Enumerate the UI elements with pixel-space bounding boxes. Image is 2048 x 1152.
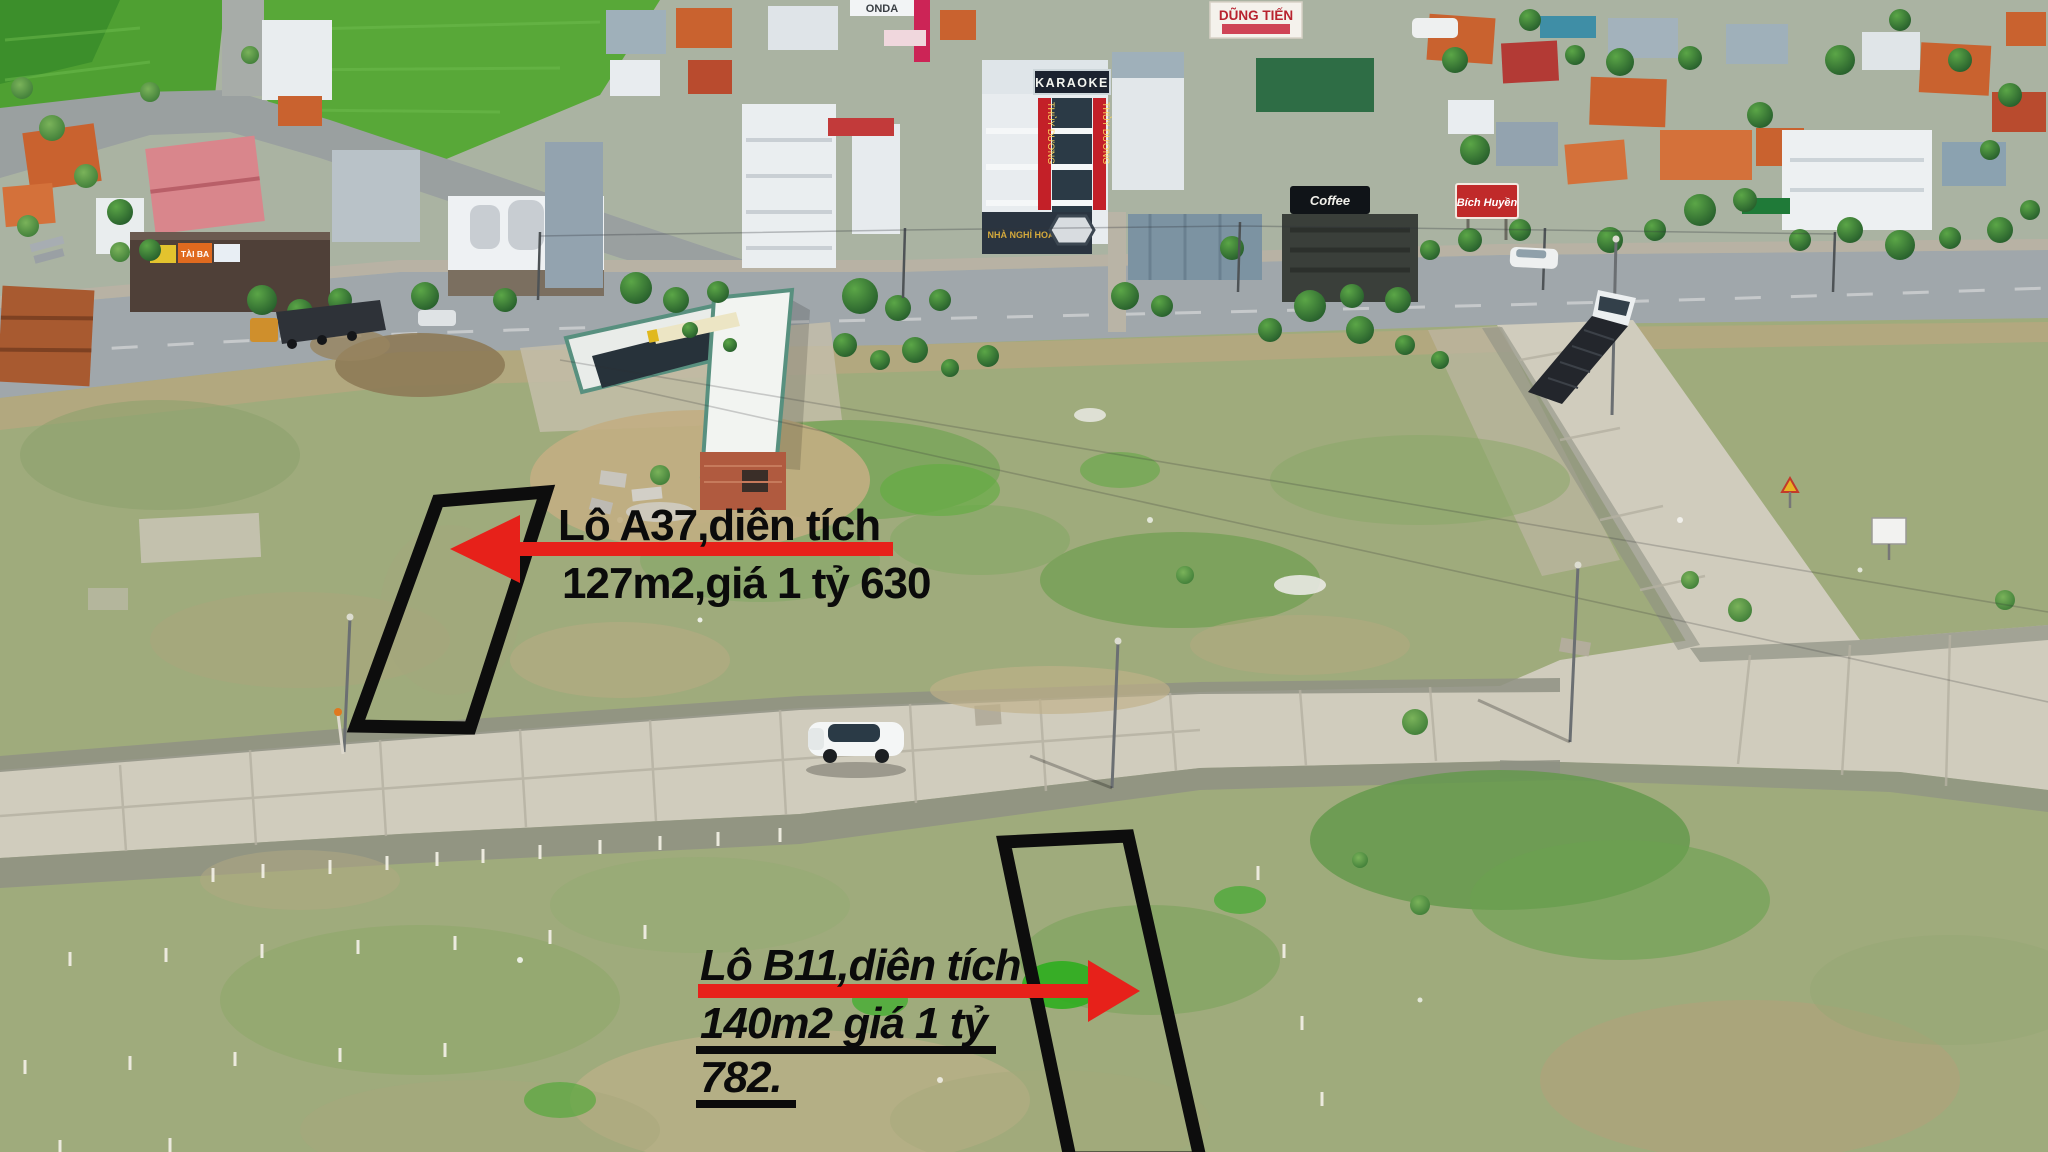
white-tall-building [852, 124, 900, 234]
roof [1660, 130, 1752, 180]
a37-label-line2: 127m2,giá 1 tỷ 630 [562, 559, 930, 608]
roof [606, 10, 666, 54]
orange-roof [278, 96, 322, 126]
thuy-duong-label-right: THỦY DƯƠNG [1101, 102, 1112, 164]
gray-tall-building [545, 142, 603, 288]
white-shop [262, 20, 332, 100]
alley [1108, 212, 1126, 332]
roof [610, 60, 660, 96]
white-notice-board [1872, 518, 1906, 544]
tai-ba-sign-label: TÀI BA [181, 249, 209, 259]
karaoke-building: KARAOKE THỦY DƯƠNG THỦY DƯƠNG NHÀ NGHỈ H… [982, 60, 1112, 254]
coral-roof-house [145, 136, 265, 235]
white-modern-building [1782, 130, 1932, 230]
roof [1862, 32, 1920, 70]
karaoke-sign-label: KARAOKE [1035, 76, 1109, 90]
karaoke-sign: KARAOKE [1034, 70, 1110, 94]
white-house-2 [1112, 78, 1184, 190]
bich-huyen-sign-label: Bích Huyền [1457, 197, 1518, 209]
brown-roof-house-left [0, 286, 94, 387]
gray-roof [1112, 52, 1184, 80]
dung-tien-sign: DŨNG TIẾN [1210, 2, 1302, 38]
north-road-stub [222, 0, 264, 96]
honda-sign-label: ONDA [866, 3, 898, 15]
b11-label-line2: 140m2 giá 1 tỷ [700, 999, 990, 1048]
white-suv [806, 722, 906, 778]
glass-column [1052, 98, 1092, 216]
teal-storefront [1540, 16, 1596, 38]
roof [2006, 12, 2046, 46]
white-midrise [742, 104, 836, 268]
roof [1589, 77, 1667, 128]
gray-roof-house [332, 150, 420, 242]
roof [676, 8, 732, 48]
tennis-court [1256, 58, 1374, 112]
scene: TÀI BA ONDA [0, 0, 2048, 1152]
honda-shop: ONDA [850, 0, 914, 16]
roof [1726, 24, 1788, 64]
b11-underline-line3 [696, 1100, 796, 1108]
hexagon-decor [1050, 216, 1094, 244]
aerial-land-plot-photo: TÀI BA ONDA [0, 0, 2048, 1152]
roof [1501, 41, 1559, 84]
a37-label-line1: Lô A37,diên tích [558, 501, 880, 550]
white-van [1510, 247, 1559, 269]
blue-white-sign [214, 244, 240, 262]
red-gold-sign [828, 118, 894, 136]
roof [940, 10, 976, 40]
roof [1496, 122, 1558, 166]
tai-ba-sign: TÀI BA [150, 243, 240, 263]
b11-label-line1: Lô B11,diên tích [700, 941, 1021, 990]
roof [688, 60, 732, 94]
pink-sign [884, 30, 926, 46]
b11-label-line3: 782. [700, 1053, 782, 1102]
roof [768, 6, 838, 50]
parked-car [418, 310, 456, 326]
parked-van [1412, 18, 1458, 38]
dung-tien-sign-label: DŨNG TIẾN [1219, 8, 1293, 23]
coffee-sign-label: Coffee [1310, 193, 1350, 208]
thuy-duong-label-left: THỦY DƯƠNG [1046, 102, 1057, 164]
roof [1564, 139, 1627, 184]
roof [1448, 100, 1494, 134]
